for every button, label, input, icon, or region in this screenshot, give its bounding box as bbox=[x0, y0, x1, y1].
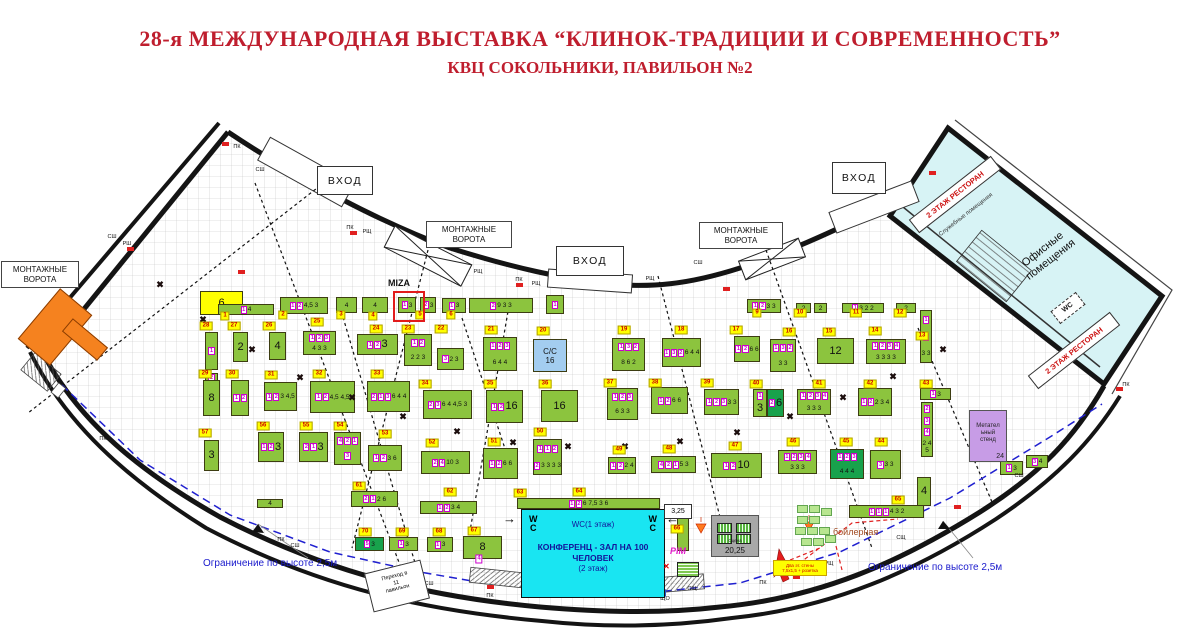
booth: 8 bbox=[203, 380, 220, 416]
booth: 13 2 2 bbox=[842, 303, 884, 313]
booth-corner-number: 1 bbox=[491, 403, 497, 411]
pim-booth bbox=[677, 562, 699, 577]
booth-number-tag: 25 bbox=[311, 318, 324, 327]
booth-corner-number: 1 bbox=[449, 302, 455, 310]
booth-size-label: 8 bbox=[479, 542, 485, 553]
booth-corner-number: 1 bbox=[930, 390, 936, 398]
booth-corner-number: 1 bbox=[757, 392, 763, 400]
booth: 1323 3 bbox=[770, 339, 796, 372]
booth-corner-number: 2 bbox=[868, 398, 874, 406]
booth-number-tag: 6 bbox=[446, 311, 455, 320]
booth-corner-number: 1 bbox=[673, 461, 679, 469]
booth: 13 bbox=[920, 388, 951, 400]
booth-corner-number: 1 bbox=[876, 508, 882, 516]
booth: 4 bbox=[917, 477, 931, 506]
booth-corner-number: 2 bbox=[619, 393, 625, 401]
stage-area: Сцена 20,25 bbox=[711, 515, 759, 557]
booth-number-tag: 22 bbox=[435, 325, 448, 334]
booth-number-tag: 28 bbox=[200, 322, 213, 331]
booth: 33 3 bbox=[870, 450, 901, 479]
booth: 123 bbox=[357, 334, 398, 355]
booth-corner-number: 1 bbox=[544, 445, 550, 453]
dimension-note: 3,25 bbox=[664, 504, 692, 519]
booth-size-label: 5 3 bbox=[680, 461, 689, 468]
booth-number-tag: 30 bbox=[226, 370, 239, 379]
booth-number-tag: 12 bbox=[894, 309, 907, 318]
booth-corner-number: 1 bbox=[266, 393, 272, 401]
booth-size-label: 3 3 3 3 bbox=[541, 462, 561, 469]
booth-corner-number: 2 bbox=[374, 341, 380, 349]
booth-size-label: 4 bbox=[248, 306, 252, 313]
booth-corner-number: 1 bbox=[315, 393, 321, 401]
booth: 122 4 bbox=[608, 457, 636, 474]
booth-corner-number: 1 bbox=[367, 341, 373, 349]
booth-corner-number: 2 bbox=[665, 397, 671, 405]
booth: 2 bbox=[814, 303, 827, 313]
booth-corner-number: 1 bbox=[723, 462, 729, 470]
booth-size-label: 9 3 3 bbox=[497, 302, 511, 309]
booth-corner-number: 2 bbox=[496, 460, 502, 468]
booth-number-tag: 31 bbox=[265, 371, 278, 380]
booth: 32 3 bbox=[437, 348, 464, 370]
booth-corner-number: 3 bbox=[887, 342, 893, 350]
booth: 2342 4 5 bbox=[921, 402, 933, 457]
booth-number-tag: 46 bbox=[787, 438, 800, 447]
booth-size-label: 2 4 5 bbox=[922, 440, 932, 454]
booth-corner-number: 2 bbox=[297, 302, 303, 310]
wall-note: Два эт. стены 7,5х1,5 + розетка bbox=[773, 560, 827, 576]
booth-corner-number: 3 bbox=[625, 343, 631, 351]
booth-number-tag: 49 bbox=[613, 446, 626, 455]
column-mark-icon: ✖ bbox=[509, 438, 517, 449]
booth-corner-number: 1 bbox=[923, 316, 929, 324]
booth-corner-number: 1 bbox=[437, 504, 443, 512]
wall-connection-mark bbox=[238, 270, 245, 274]
booth-corner-number: 2 bbox=[534, 462, 540, 470]
booth-corner-number: 1 bbox=[261, 443, 267, 451]
pim-label: PIM bbox=[670, 546, 686, 556]
booth-size-label: 3 bbox=[275, 442, 281, 453]
booth-size-label: 12 bbox=[829, 346, 841, 357]
booth: 126 7,5 3 6 bbox=[517, 498, 660, 509]
booth-number-tag: 24 bbox=[370, 325, 383, 334]
booth-corner-number: 1 bbox=[435, 541, 441, 549]
booth-corner-number: 1 bbox=[612, 393, 618, 401]
booth: 1234 3 3 bbox=[303, 331, 336, 355]
wall-utility-label: СШ bbox=[290, 543, 299, 549]
booth: 29 3 3 bbox=[469, 298, 533, 313]
booth-corner-number: 2 bbox=[498, 403, 504, 411]
booth-number-tag: 61 bbox=[353, 482, 366, 491]
booth: 236 4 4,5 3 bbox=[423, 390, 472, 419]
wall-utility-label: СЩ bbox=[896, 535, 905, 541]
mounting-gate-label: МОНТАЖНЫЕ ВОРОТА bbox=[1, 261, 79, 288]
booth-size-label: С/С 16 bbox=[543, 347, 557, 365]
booth: 12 bbox=[231, 380, 249, 416]
booth-size-label: 2 3 bbox=[450, 356, 459, 363]
booth-corner-number: 4 bbox=[924, 428, 930, 436]
booth-corner-number: 1 bbox=[241, 306, 247, 314]
furniture-block bbox=[809, 505, 820, 513]
furniture-block bbox=[819, 527, 830, 535]
booth-size-label: 4,5 3 bbox=[304, 302, 318, 309]
furniture-block bbox=[797, 505, 808, 513]
booth-corner-number: 1 bbox=[706, 398, 712, 406]
booth-number-tag: 18 bbox=[675, 326, 688, 335]
booth-size-label: 3 bbox=[430, 302, 434, 309]
booth: 2 bbox=[233, 332, 248, 362]
booth: 123 4 bbox=[420, 501, 477, 514]
booth-size-label: 2 6 bbox=[377, 496, 386, 503]
booth: 1236 4 4 bbox=[483, 337, 517, 371]
booth-number-tag: 64 bbox=[573, 488, 586, 497]
booth-size-label: 3 bbox=[757, 403, 763, 414]
booth-size-label: 4 bbox=[373, 302, 377, 309]
booth-corner-number: 1 bbox=[735, 345, 741, 353]
booth: 1 bbox=[205, 332, 218, 370]
wall-utility-label: РЩ bbox=[474, 269, 483, 275]
booth-corner-number: 2 bbox=[419, 339, 425, 347]
booth-number-tag: 50 bbox=[534, 428, 547, 437]
red-x-mark: ✕ bbox=[663, 562, 670, 571]
booth-size-label: 3 3 bbox=[778, 360, 787, 367]
booth-corner-number: 2 bbox=[323, 393, 329, 401]
exhibition-floor-plan: 614124,5 34413231329 3 31123 32213 2 221… bbox=[0, 0, 1200, 629]
throwing-stand-number: 24 bbox=[996, 453, 1004, 460]
wall-utility-label: ПК bbox=[759, 580, 766, 586]
booth-size-label: 6 4 4,5 3 bbox=[442, 401, 467, 408]
booth-number-tag: 63 bbox=[514, 489, 527, 498]
booth: 12343 3 3 bbox=[797, 389, 831, 415]
booth-size-label: 3 bbox=[405, 541, 409, 548]
booth-corner-number: 1 bbox=[233, 394, 239, 402]
booth: 2410 3 bbox=[421, 451, 470, 474]
booth-size-label: 2 bbox=[819, 305, 823, 312]
booth-number-tag: 3 bbox=[336, 311, 345, 320]
wall-utility-label: ПК bbox=[1122, 382, 1129, 388]
booth-corner-number: 1 bbox=[610, 462, 616, 470]
booth: 123 bbox=[258, 432, 284, 462]
booth-corner-number: 4 bbox=[805, 453, 811, 461]
booth-corner-number: 4 bbox=[337, 437, 343, 445]
height-limit-label-left: Ограничение по высоте 2,5м bbox=[203, 558, 337, 569]
furniture-block bbox=[795, 527, 806, 535]
booth: 16 bbox=[541, 390, 578, 422]
wall-utility-label: РЩ bbox=[363, 229, 372, 235]
wc-left-label: W C bbox=[529, 515, 538, 533]
column-mark-icon: ✖ bbox=[348, 393, 356, 404]
booth-size-label: 6 4 4 bbox=[685, 349, 699, 356]
booth-number-tag: 43 bbox=[920, 380, 933, 389]
booth: 53 bbox=[355, 537, 384, 551]
booth-number-tag: 56 bbox=[257, 422, 270, 431]
furniture-block bbox=[797, 516, 808, 524]
booth-size-label: 10 bbox=[737, 460, 749, 471]
booth-corner-number: 2 bbox=[879, 342, 885, 350]
booth-corner-number: 1 bbox=[869, 508, 875, 516]
column-mark-icon: ✖ bbox=[564, 442, 572, 453]
booth-number-tag: 52 bbox=[426, 439, 439, 448]
booth-size-label: 6 6 bbox=[503, 460, 512, 467]
wall-connection-mark bbox=[954, 505, 961, 509]
booth-corner-number: 2 bbox=[316, 334, 322, 342]
booth-size-label: 3 3 bbox=[885, 461, 894, 468]
booth-corner-number: 3 bbox=[627, 393, 633, 401]
booth-corner-number: 2 bbox=[791, 453, 797, 461]
booth-corner-tag: 4 bbox=[475, 555, 482, 564]
booth-number-tag: 26 bbox=[263, 322, 276, 331]
booth-size-label: 3 6 bbox=[388, 455, 397, 462]
column-mark-icon: ✖ bbox=[939, 345, 947, 356]
booth-size-label: 3 bbox=[442, 541, 446, 548]
booth-number-tag: 70 bbox=[359, 528, 372, 537]
title-block: 28-я МЕЖДУНАРОДНАЯ ВЫСТАВКА “КЛИНОК-ТРАД… bbox=[0, 26, 1200, 78]
booth-number-tag: 17 bbox=[730, 326, 743, 335]
entrance-label: ВХОД bbox=[556, 246, 624, 276]
booth-size-label: 4 bbox=[268, 500, 272, 507]
booth-corner-number: 5 bbox=[364, 540, 370, 548]
stage-table bbox=[736, 523, 751, 533]
booth-corner-number: 1 bbox=[800, 392, 806, 400]
booth-corner-number: 3 bbox=[344, 452, 350, 460]
booth-size-label: 16 bbox=[553, 401, 565, 412]
mounting-gate-label: МОНТАЖНЫЕ ВОРОТА bbox=[699, 222, 783, 249]
booth-corner-number: 1 bbox=[773, 344, 779, 352]
booth-corner-number: 1 bbox=[352, 437, 358, 445]
booth-corner-number: 1 bbox=[208, 347, 214, 355]
booth-number-tag: 36 bbox=[539, 380, 552, 389]
booth-corner-number: 2 bbox=[432, 459, 438, 467]
wall-utility-label: СШ bbox=[107, 234, 116, 240]
wall-utility-label: ПК bbox=[486, 593, 493, 599]
wall-connection-mark bbox=[487, 585, 494, 589]
miza-stand-label: MIZA bbox=[388, 278, 410, 288]
booth-size-label: 3 bbox=[208, 450, 214, 461]
column-mark-icon: ✖ bbox=[786, 412, 794, 423]
booth-number-tag: 27 bbox=[228, 322, 241, 331]
wall-utility-label: РЩ bbox=[646, 276, 655, 282]
booth-size-label: 6 4 4 bbox=[392, 393, 406, 400]
booth-corner-number: 2 bbox=[633, 343, 639, 351]
booth: 13 bbox=[427, 537, 453, 552]
booth: 11223 3 3 3 bbox=[533, 439, 562, 475]
booth-number-tag: 53 bbox=[379, 430, 392, 439]
booth: 12343 3 3 3 bbox=[866, 339, 906, 364]
booth: 26 bbox=[767, 389, 784, 417]
booth-number-tag: 38 bbox=[649, 379, 662, 388]
mounting-gate-label: МОНТАЖНЫЕ ВОРОТА bbox=[426, 221, 512, 248]
booth-number-tag: 51 bbox=[488, 438, 501, 447]
booth-corner-number: 1 bbox=[310, 443, 316, 451]
booth-size-label: 4 bbox=[921, 486, 927, 497]
booth: 1328 6 2 bbox=[612, 338, 645, 371]
booth-corner-number: 3 bbox=[798, 453, 804, 461]
booth-size-label: 3 3 bbox=[921, 350, 930, 357]
booth-size-label: 16 bbox=[505, 401, 517, 412]
booth-size-label: 3 bbox=[937, 391, 941, 398]
booth-corner-number: 2 bbox=[268, 443, 274, 451]
booth-corner-number: 3 bbox=[324, 334, 330, 342]
booth-corner-number: 2 bbox=[444, 504, 450, 512]
booth-size-label: 3 bbox=[1013, 465, 1017, 472]
booth-corner-number: 1 bbox=[490, 342, 496, 350]
column-mark-icon: ✖ bbox=[676, 437, 684, 448]
booth-number-tag: 67 bbox=[468, 527, 481, 536]
booth-number-tag: 44 bbox=[875, 438, 888, 447]
booth-corner-number: 3 bbox=[671, 349, 677, 357]
wall-utility-label: СШ bbox=[255, 167, 264, 173]
wall-utility-label: СЩ bbox=[687, 586, 696, 592]
conference-line3: (2 этаж) bbox=[522, 564, 664, 573]
booth: 1216 bbox=[486, 390, 523, 423]
booth-corner-number: 1 bbox=[1006, 464, 1012, 472]
booth-corner-number: 2 bbox=[576, 500, 582, 508]
booth-corner-number: 2 bbox=[742, 345, 748, 353]
column-mark-icon: ✖ bbox=[839, 393, 847, 404]
booth-number-tag: 62 bbox=[444, 488, 457, 497]
booth-corner-number: 1 bbox=[664, 349, 670, 357]
booth-corner-number: 3 bbox=[815, 392, 821, 400]
booth-size-label: 3 bbox=[382, 339, 388, 350]
booth-size-label: 8 bbox=[208, 393, 214, 404]
booth-number-tag: 47 bbox=[729, 442, 742, 451]
booth-corner-number: 1 bbox=[411, 339, 417, 347]
wall-utility-label: СШ bbox=[1014, 473, 1023, 479]
booth-number-tag: 23 bbox=[402, 325, 415, 334]
booth-number-tag: 1 bbox=[220, 312, 229, 321]
wall-utility-label: ПК bbox=[277, 537, 284, 543]
booth-size-label: 6 3 3 bbox=[615, 408, 629, 415]
booth-number-tag: 41 bbox=[813, 380, 826, 389]
booth-number-tag: 10 bbox=[794, 309, 807, 318]
wall-connection-mark bbox=[222, 142, 229, 146]
booth: 122 2 3 bbox=[404, 334, 432, 366]
wall-utility-label: ПК bbox=[515, 277, 522, 283]
booth-number-tag: 48 bbox=[663, 445, 676, 454]
booth: 4215 3 bbox=[651, 456, 696, 473]
wall-utility-label: ПК bbox=[233, 144, 240, 150]
booth-number-tag: 9 bbox=[752, 309, 761, 318]
booth-number-tag: 16 bbox=[783, 328, 796, 337]
booth-number-tag: 14 bbox=[869, 327, 882, 336]
booth-corner-number: 4 bbox=[439, 459, 445, 467]
booth-size-label: 4 3 2 bbox=[890, 508, 904, 515]
booth: 2136 4 4 bbox=[367, 381, 410, 412]
booth: 34 bbox=[1026, 455, 1048, 468]
booth-number-tag: 55 bbox=[300, 422, 313, 431]
booth-corner-number: 4 bbox=[822, 392, 828, 400]
furniture-block bbox=[807, 527, 818, 535]
wc-right-label: W C bbox=[649, 515, 658, 533]
booth-size-label: 3 bbox=[456, 302, 460, 309]
booth-size-label: 2 4 bbox=[625, 462, 634, 469]
booth-corner-number: 2 bbox=[665, 461, 671, 469]
booth-corner-number: 2 bbox=[769, 399, 775, 407]
stage-table bbox=[717, 523, 732, 533]
booth-size-label: 4 4 4 bbox=[840, 468, 854, 475]
booth-number-tag: 20 bbox=[537, 327, 550, 336]
booth-size-label: 3 3 3 3 bbox=[876, 354, 896, 361]
booth-number-tag: 35 bbox=[484, 380, 497, 389]
booth-corner-number: 2 bbox=[344, 437, 350, 445]
furniture-block bbox=[821, 508, 832, 516]
booth-corner-number: 1 bbox=[309, 334, 315, 342]
wall-utility-label: ПК bbox=[99, 436, 106, 442]
furniture-block bbox=[801, 538, 812, 546]
booth-number-tag: 39 bbox=[701, 379, 714, 388]
booth: 13 bbox=[753, 389, 767, 417]
furniture-block bbox=[809, 516, 820, 524]
booth: 1236 3 3 bbox=[607, 388, 638, 420]
booth-size-label: 3 3 bbox=[728, 399, 737, 406]
booth-corner-number: 3 bbox=[504, 342, 510, 350]
booth: 126 6 bbox=[483, 448, 518, 479]
height-limit-label-right: Ограничение по высоте 2,5м bbox=[868, 562, 1002, 573]
column-mark-icon: ✖ bbox=[399, 412, 407, 423]
column-mark-icon: ✖ bbox=[733, 428, 741, 439]
miza-highlight-frame bbox=[393, 291, 425, 322]
booth-size-label: 3 3 3 bbox=[807, 405, 821, 412]
booth-corner-number: 2 bbox=[787, 344, 793, 352]
booth-corner-number: 1 bbox=[552, 301, 558, 309]
booth-number-tag: 32 bbox=[313, 370, 326, 379]
booth: 123 4,5 bbox=[264, 382, 297, 411]
booth: 1114 3 2 bbox=[849, 505, 924, 518]
booth-size-label: 6 4 4 bbox=[493, 359, 507, 366]
page-title: 28-я МЕЖДУНАРОДНАЯ ВЫСТАВКА “КЛИНОК-ТРАД… bbox=[0, 26, 1200, 52]
booth: 4213 bbox=[334, 432, 361, 465]
booth-size-label: 10 3 bbox=[446, 459, 459, 466]
wall-utility-label: ПК bbox=[346, 225, 353, 231]
booth: 4 bbox=[257, 499, 283, 508]
booth-size-label: 4 bbox=[274, 341, 280, 352]
booth: С/С 16 bbox=[533, 339, 567, 372]
booth-number-tag: 40 bbox=[750, 380, 763, 389]
throwing-stand: Метател ьный стенд 24 bbox=[969, 410, 1007, 462]
booth-corner-number: 2 bbox=[678, 349, 684, 357]
booth-number-tag: 13 bbox=[916, 332, 929, 341]
booth: 12343 3 3 bbox=[778, 450, 817, 474]
booth-corner-number: 1 bbox=[618, 343, 624, 351]
booth-number-tag: 54 bbox=[334, 422, 347, 431]
booth: 12 bbox=[817, 338, 854, 364]
booth-corner-number: 2 bbox=[380, 454, 386, 462]
booth: 122 3 4 bbox=[858, 388, 892, 416]
conference-line1: КОНФЕРЕНЦ - ЗАЛ НА 100 bbox=[522, 542, 664, 552]
booth-number-tag: 42 bbox=[864, 380, 877, 389]
booth-corner-number: 1 bbox=[861, 398, 867, 406]
booth-number-tag: 37 bbox=[604, 379, 617, 388]
throwing-stand-label: Метател ьный стенд bbox=[976, 423, 999, 443]
booth: 4 bbox=[269, 332, 286, 360]
booth-corner-number: 2 bbox=[713, 398, 719, 406]
booth-corner-number: 3 bbox=[877, 461, 883, 469]
booth: 126 6 bbox=[734, 336, 760, 362]
booth-size-label: 2 3 4 bbox=[875, 399, 889, 406]
column-mark-icon: ✖ bbox=[889, 372, 897, 383]
booth-number-tag: 29 bbox=[199, 370, 212, 379]
booth-corner-number: 3 bbox=[721, 398, 727, 406]
booth-corner-number: 1 bbox=[398, 540, 404, 548]
booth-size-label: 6 bbox=[776, 398, 782, 409]
booth-size-label: 4 bbox=[345, 302, 349, 309]
booth: 13 bbox=[389, 537, 418, 551]
booth-corner-number: 3 bbox=[924, 417, 930, 425]
wc-first-floor-label: WC(1 этаж) bbox=[522, 520, 664, 529]
booth-size-label: 6 6 bbox=[750, 346, 759, 353]
booth-corner-number: 1 bbox=[378, 393, 384, 401]
booth-corner-number: 2 bbox=[273, 393, 279, 401]
